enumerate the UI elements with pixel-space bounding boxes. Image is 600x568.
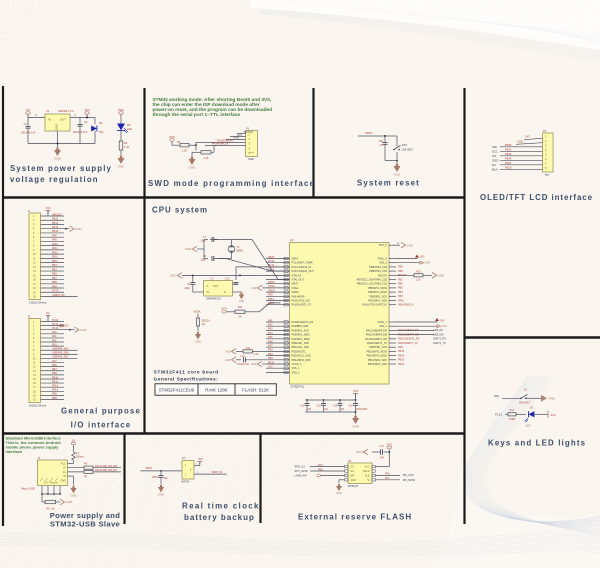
svg-text:PB14: PB14 xyxy=(505,157,512,161)
svg-text:SO: SO xyxy=(351,470,355,473)
svg-text:D7: D7 xyxy=(182,456,186,460)
svg-text:GND: GND xyxy=(425,262,431,265)
svg-text:PA11/USB4FS-DM: PA11/USB4FS-DM xyxy=(366,333,387,337)
svg-text:PA0/SPI1_ACK: PA0/SPI1_ACK xyxy=(292,328,310,332)
svg-text:1.1K: 1.1K xyxy=(416,279,421,282)
svg-text:RST: RST xyxy=(402,143,408,147)
svg-text:External reserve FLASH: External reserve FLASH xyxy=(298,513,412,522)
svg-text:PC15: PC15 xyxy=(52,327,59,330)
svg-text:GND: GND xyxy=(233,136,239,140)
svg-text:3V3: 3V3 xyxy=(353,389,358,393)
svg-text:PA7: PA7 xyxy=(268,345,273,348)
svg-text:VCAP_1: VCAP_1 xyxy=(292,362,302,366)
svg-text:CPU system: CPU system xyxy=(152,206,208,215)
svg-text:PB4/SPI1_MISO: PB4/SPI1_MISO xyxy=(368,290,387,294)
svg-text:R1: R1 xyxy=(177,140,181,144)
svg-text:CLK: CLK xyxy=(365,474,370,477)
svg-text:PA2: PA2 xyxy=(268,324,273,327)
svg-text:PB4: PB4 xyxy=(398,291,403,294)
svg-text:PB1: PB1 xyxy=(268,353,273,356)
svg-text:PB5: PB5 xyxy=(52,268,57,271)
svg-text:GND: GND xyxy=(170,274,178,278)
svg-text:PB0/ADC_2SR: PB0/ADC_2SR xyxy=(292,341,309,345)
svg-text:PB15: PB15 xyxy=(505,143,512,147)
svg-text:GND: GND xyxy=(549,397,557,401)
svg-text:PA13/JTCK_DO: PA13/JTCK_DO xyxy=(292,299,310,303)
svg-text:3V3: 3V3 xyxy=(268,366,273,369)
svg-text:STM32-USB Slave: STM32-USB Slave xyxy=(50,520,120,529)
svg-text:510R: 510R xyxy=(509,417,515,421)
svg-text:PA15: PA15 xyxy=(52,256,59,259)
svg-text:PB1: PB1 xyxy=(52,368,57,371)
svg-text:PA11/USB_DM_DM: PA11/USB_DM_DM xyxy=(95,465,117,468)
svg-text:GND: GND xyxy=(407,243,415,247)
svg-text:G: G xyxy=(224,291,226,294)
svg-text:USB_DP: USB_DP xyxy=(433,329,443,332)
svg-text:E X T Rcensr: E X T Rcensr xyxy=(44,482,58,485)
svg-text:PC13: PC13 xyxy=(52,319,59,322)
svg-text:LAN8_WP: LAN8_WP xyxy=(295,473,307,477)
svg-text:GND: GND xyxy=(75,227,83,231)
svg-text:PA3: PA3 xyxy=(52,343,57,346)
svg-text:PB9: PB9 xyxy=(52,397,57,400)
svg-text:TFT: TFT xyxy=(545,173,550,177)
svg-text:U1: U1 xyxy=(46,109,50,113)
svg-text:PA5: PA5 xyxy=(385,473,390,476)
svg-text:SPU_MOSI: SPU_MOSI xyxy=(295,469,309,473)
svg-text:STM32F411CEU6: STM32F411CEU6 xyxy=(159,388,195,393)
svg-text:SDI: SDI xyxy=(492,145,497,149)
svg-text:CS: CS xyxy=(351,466,355,469)
svg-text:BOT_P: BOT_P xyxy=(379,244,387,247)
svg-text:NRST: NRST xyxy=(292,282,299,286)
svg-text:R17: R17 xyxy=(510,408,515,412)
svg-text:System reset: System reset xyxy=(357,179,420,188)
svg-text:the chip can enter the ISP dow: the chip can enter the ISP download mode… xyxy=(153,102,260,108)
svg-text:K1: K1 xyxy=(524,388,528,392)
svg-text:104: 104 xyxy=(164,477,169,480)
svg-text:PB10: PB10 xyxy=(505,166,512,170)
svg-text:P3: P3 xyxy=(543,129,547,133)
svg-text:PB15/SPI2_MOSI: PB15/SPI2_MOSI xyxy=(367,349,388,353)
svg-text:OUT: OUT xyxy=(213,285,219,288)
svg-text:PA15: PA15 xyxy=(398,299,405,302)
svg-text:PA12: PA12 xyxy=(52,251,59,254)
svg-text:5V: 5V xyxy=(72,438,76,442)
svg-text:PB0: PB0 xyxy=(52,364,57,367)
svg-text:PB12/SPI2_NSS: PB12/SPI2_NSS xyxy=(368,362,387,366)
svg-text:PB5/SPI1_MOSI: PB5/SPI1_MOSI xyxy=(368,286,387,290)
svg-text:PB9/TIM4_CS4: PB9/TIM4_CS4 xyxy=(369,265,387,269)
svg-text:PB10: PB10 xyxy=(52,376,59,379)
svg-text:224-0957: 224-0957 xyxy=(402,148,414,152)
svg-text:15pF: 15pF xyxy=(201,240,207,243)
svg-text:PB13/SPI2_SCK: PB13/SPI2_SCK xyxy=(368,358,387,362)
svg-text:GND: GND xyxy=(251,363,257,366)
svg-text:GND: GND xyxy=(394,173,402,177)
svg-text:C13: C13 xyxy=(333,405,338,407)
svg-text:USB/PA4_D05: USB/PA4_D05 xyxy=(52,348,69,351)
svg-text:IN: IN xyxy=(207,291,210,294)
svg-text:BOOT0: BOOT0 xyxy=(244,130,254,134)
svg-text:VCC: VCC xyxy=(61,463,66,466)
svg-text:PB10: PB10 xyxy=(268,361,275,364)
svg-text:R6: R6 xyxy=(124,141,128,145)
svg-text:PB6: PB6 xyxy=(398,283,403,286)
svg-text:I/O interface: I/O interface xyxy=(71,421,132,430)
svg-text:GND: GND xyxy=(54,157,62,161)
svg-text:PB14: PB14 xyxy=(398,354,405,357)
svg-text:PA1: PA1 xyxy=(52,335,57,338)
svg-text:5V: 5V xyxy=(46,311,49,315)
svg-text:STM32F411 core board: STM32F411 core board xyxy=(154,370,219,376)
svg-text:PA10/USART1_RX: PA10/USART1_RX xyxy=(292,320,314,324)
svg-text:VSS_3: VSS_3 xyxy=(379,261,388,265)
svg-text:PB10/I2C2_CKD: PB10/I2C2_CKD xyxy=(292,354,311,358)
svg-text:PA0: PA0 xyxy=(52,331,57,334)
svg-text:PA4: PA4 xyxy=(318,464,323,467)
svg-text:0A: 0A xyxy=(202,323,205,326)
svg-text:SCL: SCL xyxy=(492,149,498,153)
svg-text:General purpose: General purpose xyxy=(61,407,141,416)
svg-text:C2: C2 xyxy=(380,143,384,147)
svg-text:PB2: PB2 xyxy=(52,372,57,375)
svg-text:VSSA: VSSA xyxy=(268,285,275,288)
svg-text:PA15/SPI1_NSS: PA15/SPI1_NSS xyxy=(368,299,387,303)
svg-text:interface: interface xyxy=(6,449,23,454)
svg-text:PB0: PB0 xyxy=(268,349,273,352)
svg-text:PA10/USART1_RX: PA10/USART1_RX xyxy=(398,338,420,341)
svg-text:GND: GND xyxy=(118,165,126,169)
svg-text:104: 104 xyxy=(380,457,385,460)
svg-text:VBAT: VBAT xyxy=(268,256,275,259)
svg-text:PA7: PA7 xyxy=(385,477,390,480)
svg-text:Keys and LED lights: Keys and LED lights xyxy=(488,439,586,448)
svg-text:GND: GND xyxy=(251,287,257,290)
svg-text:PB9: PB9 xyxy=(52,285,57,288)
svg-text:PA13: PA13 xyxy=(268,298,275,301)
svg-text:VBAT_IN: VBAT_IN xyxy=(212,470,223,474)
svg-text:VDDA: VDDA xyxy=(292,290,299,294)
svg-text:VSSA: VSSA xyxy=(292,286,299,290)
svg-text:1.4K: 1.4K xyxy=(124,145,130,149)
svg-text:3V3: 3V3 xyxy=(221,307,227,311)
svg-text:PC14: PC14 xyxy=(52,323,59,326)
svg-text:GND: GND xyxy=(55,124,59,130)
svg-text:JWK4FB 023: JWK4FB 023 xyxy=(206,298,221,301)
svg-text:GND: GND xyxy=(189,166,197,170)
svg-text:HOLD: HOLD xyxy=(363,470,370,473)
svg-text:PB15: PB15 xyxy=(398,350,405,353)
svg-text:D5: D5 xyxy=(127,123,131,127)
svg-text:29pF: 29pF xyxy=(185,287,191,290)
svg-text:VBAT: VBAT xyxy=(292,257,299,261)
svg-text:W25Q32: W25Q32 xyxy=(348,485,358,488)
svg-text:PB11: PB11 xyxy=(505,161,512,165)
svg-text:PA4: PA4 xyxy=(268,332,273,335)
svg-text:C2: C2 xyxy=(24,122,28,126)
svg-text:GND: GND xyxy=(438,274,446,278)
svg-text:VDDL_1: VDDL_1 xyxy=(377,320,387,324)
svg-text:C16: C16 xyxy=(349,405,354,407)
svg-text:PA3: PA3 xyxy=(268,328,273,331)
svg-text:PA7: PA7 xyxy=(52,360,57,363)
svg-text:PA12/USB4FS-DP: PA12/USB4FS-DP xyxy=(366,328,387,332)
svg-text:500mA: 500mA xyxy=(76,456,84,459)
svg-text:D4: D4 xyxy=(99,121,103,125)
svg-text:LED: LED xyxy=(525,424,530,428)
svg-text:3V3: 3V3 xyxy=(440,320,445,323)
svg-text:3V3: 3V3 xyxy=(64,325,69,328)
svg-text:3V3: 3V3 xyxy=(84,108,90,112)
svg-text:PB7: PB7 xyxy=(52,277,57,280)
svg-text:C17: C17 xyxy=(380,445,385,448)
svg-text:VDDA: VDDA xyxy=(194,311,201,314)
svg-text:PC13: PC13 xyxy=(495,413,502,417)
svg-text:SDO: SDO xyxy=(492,158,499,162)
svg-text:LED: LED xyxy=(127,127,132,131)
svg-text:PB12/SPI2_NSS: PB12/SPI2_NSS xyxy=(292,358,311,362)
svg-text:3V3: 3V3 xyxy=(169,135,175,139)
svg-text:16D1(2.54mm): 16D1(2.54mm) xyxy=(29,404,46,408)
svg-text:5V: 5V xyxy=(26,108,30,112)
svg-text:VBAT: VBAT xyxy=(146,466,153,470)
svg-text:PB11: PB11 xyxy=(52,380,59,383)
svg-text:PA9/USART1_TX: PA9/USART1_TX xyxy=(367,341,387,345)
svg-text:104: 104 xyxy=(379,139,384,143)
svg-text:PB7: PB7 xyxy=(398,278,403,281)
svg-text:General Specifications:: General Specifications: xyxy=(154,377,219,383)
svg-text:5V1: 5V1 xyxy=(99,130,104,134)
svg-text:SWD: SWD xyxy=(248,157,254,161)
svg-text:PA15/UART1_TX: PA15/UART1_TX xyxy=(292,303,312,307)
svg-text:NRST: NRST xyxy=(268,281,275,284)
svg-text:BAT54: BAT54 xyxy=(182,480,190,484)
svg-text:RAM: 128K: RAM: 128K xyxy=(205,388,228,393)
svg-text:PA8/TIM1_CH1: PA8/TIM1_CH1 xyxy=(369,345,387,349)
svg-text:STM32F411: STM32F411 xyxy=(291,386,305,389)
svg-text:NRST: NRST xyxy=(365,131,373,135)
svg-text:PB12: PB12 xyxy=(52,218,59,221)
svg-text:WP: WP xyxy=(351,474,355,477)
svg-text:3V3: 3V3 xyxy=(387,442,393,446)
svg-text:VBUS1K: VBUS1K xyxy=(52,213,62,216)
svg-text:PB9: PB9 xyxy=(398,266,403,269)
svg-text:SI: SI xyxy=(367,479,370,482)
svg-text:PB14: PB14 xyxy=(52,226,59,229)
svg-text:PA9: PA9 xyxy=(52,239,57,242)
svg-text:PB8: PB8 xyxy=(52,393,57,396)
svg-text:15pF: 15pF xyxy=(201,259,207,262)
svg-text:PB2: PB2 xyxy=(268,357,273,360)
svg-text:GND: GND xyxy=(351,479,357,482)
svg-text:Real time clock: Real time clock xyxy=(182,502,260,511)
svg-text:GND: GND xyxy=(336,491,342,495)
svg-text:PA2: PA2 xyxy=(52,339,57,342)
svg-text:AMS1117-3.3: AMS1117-3.3 xyxy=(58,109,74,113)
svg-text:ID: ID xyxy=(64,475,67,478)
svg-text:BLK: BLK xyxy=(492,167,498,171)
svg-text:PB3/SPI1_SCK: PB3/SPI1_SCK xyxy=(369,294,387,298)
svg-text:VSS_1: VSS_1 xyxy=(292,366,301,370)
svg-text:C10: C10 xyxy=(225,278,230,281)
svg-text:G: G xyxy=(207,285,209,288)
svg-text:CS: CS xyxy=(492,154,496,158)
svg-text:VSS_1: VSS_1 xyxy=(379,324,388,328)
svg-text:GND: GND xyxy=(195,340,201,344)
svg-text:3V3: 3V3 xyxy=(46,206,51,210)
svg-text:OLED/TFT LCD interface: OLED/TFT LCD interface xyxy=(480,193,593,202)
svg-text:voltage regulation: voltage regulation xyxy=(10,175,99,184)
svg-text:PA8: PA8 xyxy=(398,346,403,349)
svg-text:GND: GND xyxy=(225,350,231,353)
svg-text:GND: GND xyxy=(60,479,66,482)
svg-text:GND: GND xyxy=(225,359,231,362)
svg-text:U2: U2 xyxy=(290,238,294,242)
svg-text:GND: GND xyxy=(80,328,88,332)
svg-text:GND: GND xyxy=(517,140,523,144)
svg-text:3V3: 3V3 xyxy=(525,135,530,139)
svg-text:System power supply: System power supply xyxy=(10,164,112,173)
svg-text:SPD_CS: SPD_CS xyxy=(295,465,306,469)
svg-text:8MHz: 8MHz xyxy=(237,250,244,253)
svg-text:105C3: 105C3 xyxy=(151,476,159,479)
svg-text:XTAL-IN: XTAL-IN xyxy=(292,273,302,277)
svg-text:PC14-OSC32_IN: PC14-OSC32_IN xyxy=(292,265,312,269)
svg-text:VDDA: VDDA xyxy=(268,289,275,292)
svg-text:DKAJSLT: DKAJSLT xyxy=(519,401,531,405)
svg-text:PA10: PA10 xyxy=(52,243,59,246)
svg-text:1.7k: 1.7k xyxy=(254,353,259,356)
svg-text:PA12/USB_DM_DP: PA12/USB_DM_DP xyxy=(95,469,117,472)
svg-text:PB2/BOOT1: PB2/BOOT1 xyxy=(292,349,307,353)
svg-text:USB/PA5_D06: USB/PA5_D06 xyxy=(52,352,69,355)
svg-text:16D1(2.54mm): 16D1(2.54mm) xyxy=(29,301,46,305)
svg-text:RCT5: RCT5 xyxy=(52,290,59,293)
svg-text:PA0/SPI1_MDO: PA0/SPI1_MDO xyxy=(292,333,310,337)
svg-text:USB_DM: USB_DM xyxy=(433,333,443,336)
svg-text:PA9/USART1_TX: PA9/USART1_TX xyxy=(398,342,418,345)
svg-text:PA0: PA0 xyxy=(268,294,273,297)
svg-text:PA0: PA0 xyxy=(494,394,500,398)
svg-text:PB15: PB15 xyxy=(52,230,59,233)
svg-text:GND: GND xyxy=(158,493,164,497)
svg-text:100nF/25V: 100nF/25V xyxy=(356,409,368,411)
svg-text:PB8/TIM4_CS3: PB8/TIM4_CS3 xyxy=(369,269,387,273)
svg-text:C11: C11 xyxy=(241,355,246,358)
svg-text:Micro_USB: Micro_USB xyxy=(21,487,34,491)
svg-text:PB8: PB8 xyxy=(398,270,403,273)
svg-text:GND: GND xyxy=(66,500,74,504)
svg-text:PB13: PB13 xyxy=(505,148,512,152)
svg-text:R10: R10 xyxy=(416,271,421,274)
svg-text:USB/PA6_D07: USB/PA6_D07 xyxy=(52,356,69,359)
svg-text:PB13: PB13 xyxy=(398,359,405,362)
svg-text:PA5: PA5 xyxy=(268,336,273,339)
svg-text:PB8: PB8 xyxy=(52,281,57,284)
svg-text:PA11: PA11 xyxy=(52,247,58,250)
svg-text:GND: GND xyxy=(352,425,360,429)
svg-text:9K: 9K xyxy=(239,316,242,319)
svg-text:1.1K: 1.1K xyxy=(203,156,209,160)
svg-text:power-on reset, and the progra: power-on reset, and the program can be d… xyxy=(153,107,273,113)
svg-text:PB12: PB12 xyxy=(398,363,405,366)
svg-text:SWD mode programming interface: SWD mode programming interface xyxy=(148,179,315,188)
svg-text:PB6: PB6 xyxy=(52,273,57,276)
svg-text:PA6: PA6 xyxy=(268,340,273,343)
svg-text:PB4: PB4 xyxy=(52,264,57,267)
svg-text:UART1_RX: UART1_RX xyxy=(433,338,446,341)
svg-text:FLASH: 512K: FLASH: 512K xyxy=(242,388,269,393)
svg-text:PC13: PC13 xyxy=(268,260,275,263)
svg-text:battery backup: battery backup xyxy=(184,513,255,522)
svg-text:PA8: PA8 xyxy=(52,234,57,237)
svg-text:SPI_MOSI: SPI_MOSI xyxy=(403,478,416,482)
svg-text:PB3: PB3 xyxy=(52,260,57,263)
svg-text:PB13: PB13 xyxy=(52,222,59,225)
svg-text:R14: R14 xyxy=(246,347,251,350)
svg-text:VDD_1: VDD_1 xyxy=(292,370,301,374)
svg-text:1.1K: 1.1K xyxy=(182,149,188,153)
svg-text:U4: U4 xyxy=(348,459,352,463)
svg-text:C12: C12 xyxy=(316,405,321,407)
svg-text:PA10/USART1_RX: PA10/USART1_RX xyxy=(365,337,387,341)
svg-text:PA14/SWCLK: PA14/SWCLK xyxy=(398,304,414,307)
svg-text:PA1: PA1 xyxy=(268,319,273,322)
svg-text:D+: D+ xyxy=(63,471,67,474)
svg-text:VDDL_3: VDDL_3 xyxy=(377,257,387,261)
svg-text:PB1/ADC_2SD: PB1/ADC_2SD xyxy=(292,345,309,349)
svg-text:PB5: PB5 xyxy=(398,287,403,290)
svg-text:3A 1.1k: 3A 1.1k xyxy=(46,508,55,511)
svg-text:PA14/JTCK-SWTCLK: PA14/JTCK-SWTCLK xyxy=(362,303,387,307)
svg-text:PB5: PB5 xyxy=(318,468,323,471)
svg-text:PB6/I2C1_SCL/TIM4_CS1: PB6/I2C1_SCL/TIM4_CS1 xyxy=(357,282,388,286)
svg-text:through the serial port 1--TTL: through the serial port 1--TTL interface xyxy=(153,112,241,118)
svg-text:XTAL-OUT: XTAL-OUT xyxy=(292,278,305,282)
svg-text:GND: GND xyxy=(185,247,193,251)
svg-text:PD2: PD2 xyxy=(118,108,124,112)
svg-text:VCC: VCC xyxy=(364,466,369,469)
svg-text:3V3: 3V3 xyxy=(198,457,203,461)
svg-text:3V3: 3V3 xyxy=(420,256,425,259)
svg-text:UART1_TX: UART1_TX xyxy=(433,342,446,345)
svg-text:R11: R11 xyxy=(238,306,243,309)
svg-text:SPI_SCK: SPI_SCK xyxy=(403,473,414,477)
svg-text:PA0/SPI1_MDR: PA0/SPI1_MDR xyxy=(292,337,310,341)
svg-text:PB7/I2C1_SDA/TIM4_CS2: PB7/I2C1_SDA/TIM4_CS2 xyxy=(357,278,388,282)
svg-text:GND: GND xyxy=(71,494,77,498)
svg-text:PC13/ANTI_TAMP: PC13/ANTI_TAMP xyxy=(292,261,313,265)
svg-text:C4: C4 xyxy=(84,120,88,124)
svg-text:47uF(6.3V): 47uF(6.3V) xyxy=(237,363,249,366)
svg-text:PB3: PB3 xyxy=(398,295,403,298)
svg-text:BOOT0: BOOT0 xyxy=(378,273,387,277)
svg-text:USB33_D6: USB33_D6 xyxy=(52,294,65,297)
svg-text:3V3: 3V3 xyxy=(551,413,556,417)
svg-text:D-: D- xyxy=(63,467,66,470)
svg-text:D2: D2 xyxy=(530,406,534,410)
svg-text:PC15-OSC32_OUT: PC15-OSC32_OUT xyxy=(292,269,315,273)
svg-text:GND: GND xyxy=(239,300,245,303)
svg-text:GND: GND xyxy=(356,450,364,454)
svg-text:IN: IN xyxy=(48,118,51,122)
svg-text:PB14/SPI2_MISO: PB14/SPI2_MISO xyxy=(367,354,387,358)
svg-text:STM32 working mode: After shor: STM32 working mode: After shorting Boot0… xyxy=(153,97,272,103)
svg-text:PA0/BP9_NSR: PA0/BP9_NSR xyxy=(292,324,309,328)
svg-text:GND: GND xyxy=(441,325,447,328)
svg-text:PB12: PB12 xyxy=(505,152,512,156)
